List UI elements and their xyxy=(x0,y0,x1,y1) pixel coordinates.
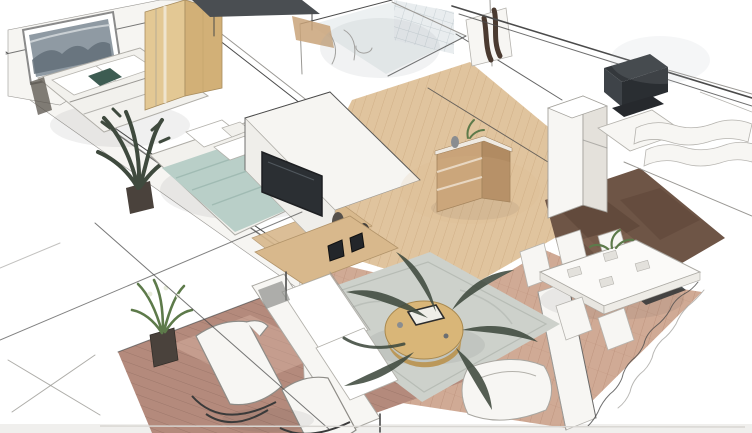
floorplan-illustration xyxy=(0,0,752,433)
floorplan-canvas xyxy=(0,0,752,433)
tall-white-cabinet xyxy=(548,96,607,218)
round-coffee-table xyxy=(385,301,463,367)
